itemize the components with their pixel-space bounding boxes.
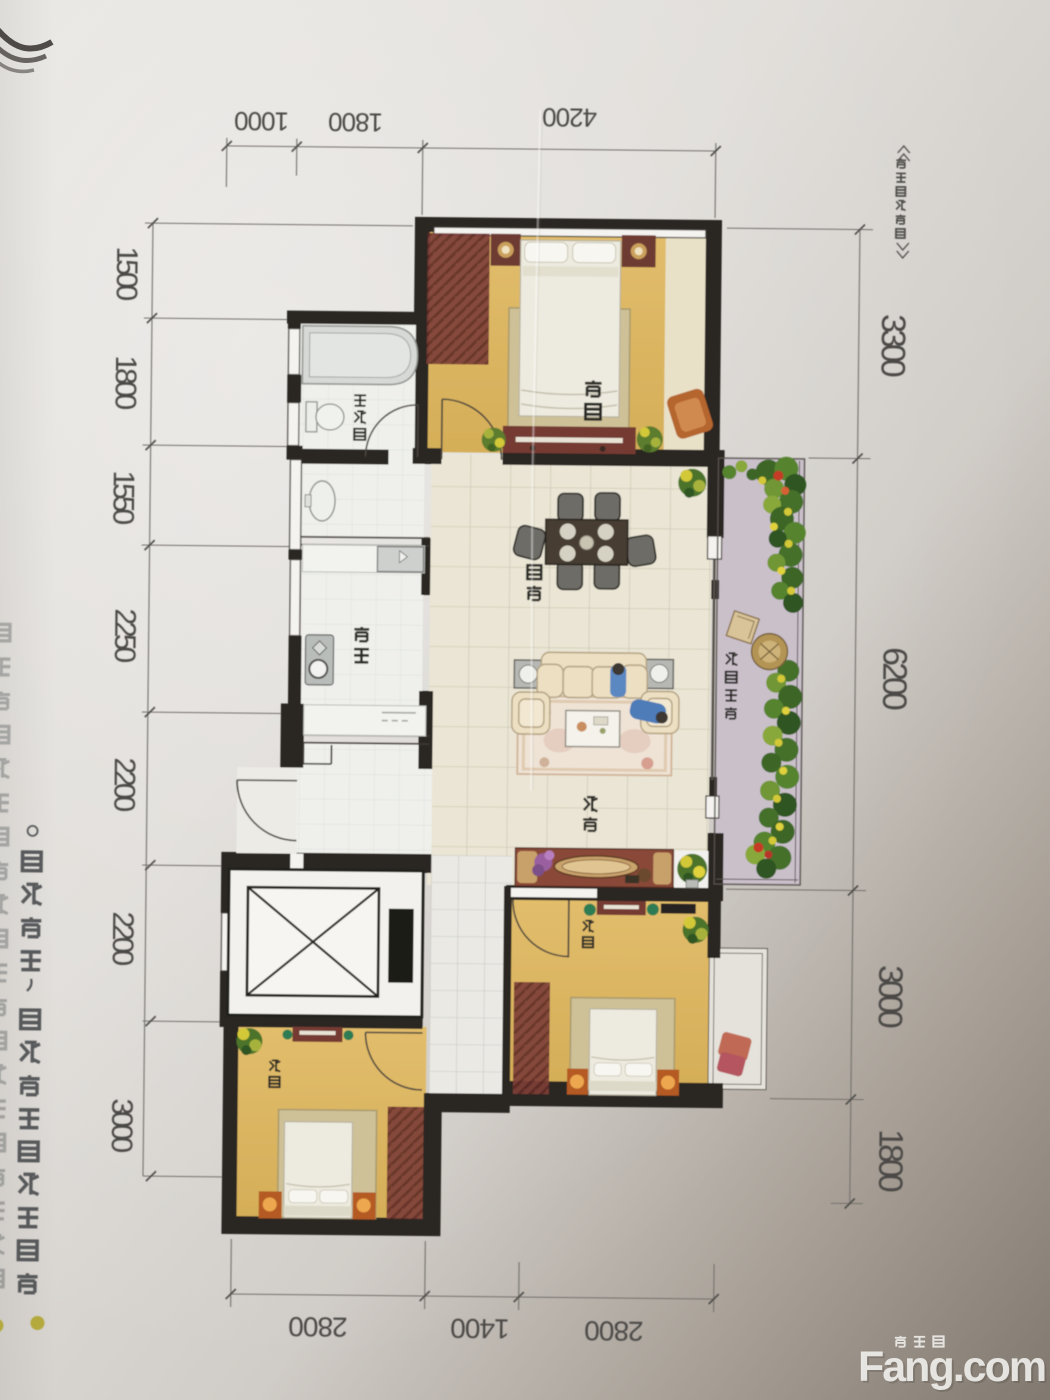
- svg-text:6200: 6200: [875, 647, 914, 710]
- svg-text:1550: 1550: [106, 470, 140, 524]
- svg-text:2800: 2800: [585, 1315, 644, 1347]
- svg-text:4200: 4200: [542, 102, 597, 133]
- svg-text:1800: 1800: [871, 1129, 910, 1192]
- svg-text:2200: 2200: [107, 757, 141, 811]
- svg-text:2200: 2200: [106, 911, 140, 965]
- svg-text:Fang.com: Fang.com: [858, 1343, 1045, 1391]
- svg-text:3000: 3000: [871, 965, 910, 1028]
- svg-text:1800: 1800: [109, 355, 143, 409]
- svg-text:3000: 3000: [105, 1098, 139, 1152]
- svg-text:2250: 2250: [108, 608, 142, 662]
- svg-text:3300: 3300: [873, 314, 912, 377]
- svg-text:2800: 2800: [289, 1311, 348, 1343]
- svg-text:1400: 1400: [451, 1313, 510, 1345]
- svg-text:1500: 1500: [110, 246, 144, 300]
- svg-text:1000: 1000: [234, 106, 289, 137]
- svg-text:1800: 1800: [328, 107, 383, 138]
